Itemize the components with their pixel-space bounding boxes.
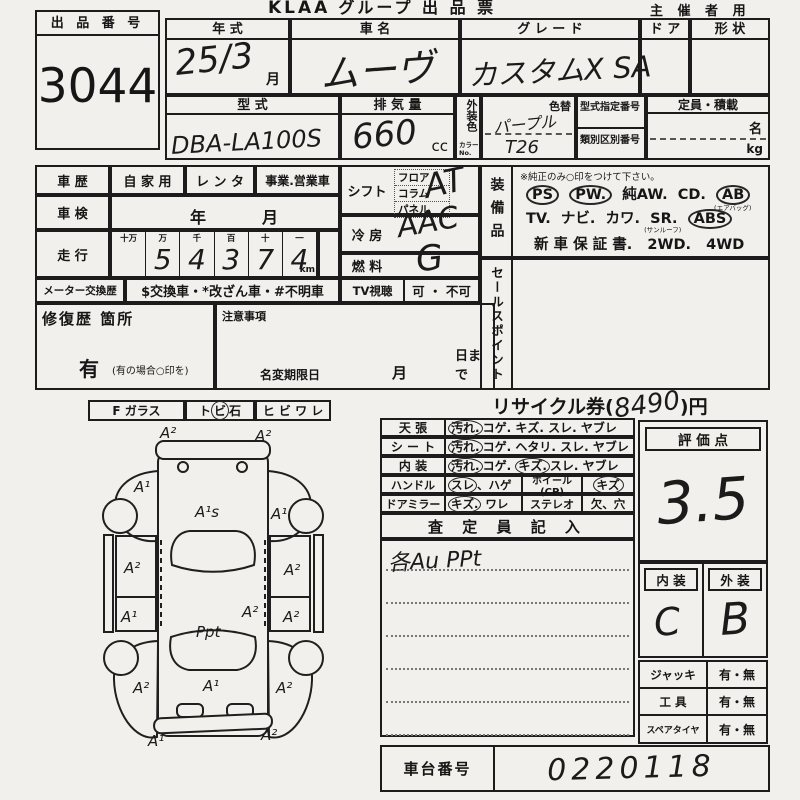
grade-value: カスタムX SA (467, 43, 652, 95)
equipment-label: 装備品 (487, 177, 507, 246)
shape-cell: 形 状 (690, 18, 770, 95)
sheet-title-text: グループ 出 品 票 (338, 0, 496, 17)
recycle-suffix: )円 (680, 396, 708, 418)
tv-label: TV視聴 (342, 280, 405, 301)
headliner-label: 天 張 (382, 420, 446, 435)
meter-history-label: メーター交換歴 (35, 278, 125, 303)
spare-tire-label: スペアタイヤ (640, 716, 708, 742)
left-sill-strip (104, 535, 113, 632)
inspector-header: 査 定 員 記 入 (380, 513, 635, 539)
shift-value: AT (420, 159, 468, 206)
equip-tv: TV. (526, 211, 551, 227)
grade-cell: グ レ ー ド カスタムX SA (460, 18, 640, 95)
car-name-label: 車 名 (292, 20, 458, 40)
organizer-use-label: 主 催 者 用 (650, 0, 751, 19)
rear-bumper (154, 713, 273, 733)
grade-box: 内 装 外 装 C B (638, 562, 768, 658)
meter-history-options: $交換車・*改ざん車・#不明車 (125, 278, 340, 303)
capacity-cell: 定員・積載 名 kg (646, 95, 770, 160)
auction-sheet: KLAA グループ 出 品 票 主 催 者 用 出 品 番 号 3044 年 式… (0, 0, 800, 800)
exterior-color-label: 外装色 (463, 99, 479, 132)
interior-grade-label: 内 装 (644, 568, 698, 591)
mileage-spare-cell (318, 230, 340, 278)
score-value: 3.5 (637, 447, 770, 556)
equip-sr: SR.(サンルーフ) (650, 211, 677, 227)
door-mirror-options: キズ. ワレ (446, 496, 523, 511)
damage-annotation: A¹s (194, 503, 219, 521)
damage-annotation: A¹ (120, 608, 137, 626)
damage-annotation: A¹ (202, 677, 219, 695)
lot-number-label: 出 品 番 号 (37, 12, 158, 36)
jack-value: 有・無 (708, 662, 766, 687)
sales-point-label: セールスポイント (487, 266, 506, 382)
rear-left-wheel (104, 641, 138, 675)
year-cell: 年 式 25/3 月 (165, 18, 290, 95)
damage-annotation: A² (132, 679, 149, 697)
fuel-value: G (414, 238, 445, 281)
tv-cell: TV視聴 可 ・ 不可 (340, 278, 480, 303)
mileage-label: 走 行 (35, 230, 110, 278)
condition-interior-row: 内 装 汚れ.コゲ. キズ.スレ. ヤブレ (380, 456, 635, 475)
damage-annotation: A² (282, 608, 299, 626)
equip-pw: PW. (569, 185, 612, 205)
year-value: 25/3 (173, 36, 255, 84)
ac-cell: 冷 房 AAC (340, 215, 480, 253)
right-mirror-dot (237, 462, 247, 472)
fuel-cell: 燃 料 G (340, 253, 480, 278)
interior-trim-label: 内 装 (382, 458, 446, 473)
history-label: 車 歴 (35, 165, 110, 195)
displacement-cell: 排 気 量 660 cc (340, 95, 455, 160)
name-change-label: 名変期限日 (260, 366, 320, 383)
jack-label: ジャッキ (640, 662, 708, 687)
displacement-value: 660 (350, 112, 418, 158)
front-left-wheel (103, 499, 137, 533)
door-label: ド ア (642, 20, 688, 40)
condition-mirror-row: ドアミラー キズ. ワレ ステレオ 欠、穴 (380, 494, 635, 513)
condition-headliner-row: 天 張 汚れ.コゲ. キズ. スレ. ヤブレ (380, 418, 635, 437)
ruled-line (386, 734, 629, 736)
digit-value: 3 (215, 244, 248, 274)
color-code-value: T26 (505, 137, 539, 158)
repair-yes-note: (有の場合○印を) (112, 362, 189, 377)
equip-cd: CD. (678, 187, 706, 203)
color-value-cell: 色替 パープル T26 (481, 95, 576, 160)
mileage-digits: 十万 万 5 千 4 百 3 十 7 一 4 km (110, 230, 318, 278)
score-box: 評 価 点 3.5 (638, 420, 768, 562)
capacity-weight-unit: kg (746, 142, 763, 156)
exterior-grade-value: B (718, 593, 752, 646)
history-business: 事業.営業車 (255, 165, 340, 195)
caution-label: 注意事項 (217, 305, 493, 324)
exterior-color-side-cell: 外装色 カラーNo. (455, 95, 481, 160)
shift-label: シフト (342, 167, 392, 213)
grade-box-divider (702, 564, 704, 656)
repair-yes-label: 有 (79, 353, 99, 382)
car-name-value: ムーヴ (318, 36, 436, 99)
front-right-wheel (289, 499, 323, 533)
condition-handle-row: ハンドル スレ、ハゲ ホイール(CP) キズ (380, 475, 635, 494)
chassis-number-label: 車台番号 (382, 747, 495, 790)
windshield (171, 531, 255, 572)
digit-value: 7 (249, 244, 282, 274)
digit-value: 4 (180, 244, 213, 274)
handle-options: スレ、ハゲ (446, 477, 523, 492)
model-code-label: 型 式 (167, 97, 338, 115)
equip-navi: ナビ. (561, 211, 596, 227)
grade-label: グ レ ー ド (462, 20, 638, 40)
lot-number-value: 3044 (37, 36, 158, 136)
seat-label: シ ー ト (382, 439, 446, 454)
equipment-box: 装備品 ※純正のみ○印をつけて下さい。 PS PW. 純AW. CD. AB(エ… (480, 165, 770, 258)
color-cell-divider (485, 133, 572, 135)
equipment-row-1: PS PW. 純AW. CD. AB(エアバッグ) (526, 183, 750, 205)
digit-header: 十万 (112, 232, 145, 244)
model-code-cell: 型 式 DBA-LA100S (165, 95, 340, 160)
auction-logo: KLAA (268, 0, 330, 18)
inspection-month-unit: 月 (262, 204, 278, 228)
year-month-unit: 月 (266, 69, 280, 89)
year-label: 年 式 (167, 20, 288, 40)
inspection-year-unit: 年 (190, 204, 206, 228)
equip-warranty: 新 車 保 証 書. (534, 237, 632, 253)
digit-value (112, 244, 145, 274)
damage-annotation: A¹ (147, 732, 164, 750)
equip-2wd: 2WD. (647, 237, 691, 253)
caution-box: 注意事項 名変期限日 月 日まで (215, 303, 495, 390)
car-diagram: A²A²A¹A¹sA¹A²A²A¹A²A²PptA²A¹A²A¹A² (75, 418, 375, 800)
door-mirror-label: ドアミラー (382, 496, 446, 511)
damage-annotation: Ppt (196, 623, 222, 641)
equip-aw: 純AW. (622, 187, 667, 203)
damage-annotation: A² (283, 561, 300, 579)
equipment-side-label-cell: 装備品 (482, 167, 513, 256)
ruled-line (386, 602, 629, 604)
handle-label: ハンドル (382, 477, 446, 492)
history-rental: レ ン タ (185, 165, 255, 195)
rear-right-wheel (289, 641, 323, 675)
rear-lamp-left (177, 704, 203, 717)
stereo-label: ステレオ (523, 496, 583, 511)
car-name-cell: 車 名 ムーヴ (290, 18, 460, 95)
wheel-cp-label: ホイール(CP) (523, 477, 583, 492)
sales-point-side-cell: セールスポイント (482, 260, 513, 388)
displacement-unit: cc (432, 137, 449, 155)
ac-label: 冷 房 (342, 217, 392, 251)
damage-annotation: A² (123, 559, 140, 577)
sales-point-box: セールスポイント (480, 258, 770, 390)
tools-label: 工 具 (640, 689, 708, 714)
history-private: 自 家 用 (110, 165, 185, 195)
equipment-row-3: 新 車 保 証 書. 2WD. 4WD (534, 233, 744, 254)
damage-annotation: A² (241, 603, 258, 621)
inspector-notes-box: 各Au PPt (380, 539, 635, 737)
equip-abs: ABS (688, 209, 733, 229)
fuel-label: 燃 料 (342, 255, 392, 276)
equip-ps: PS (526, 185, 559, 205)
chassis-number-box: 車台番号 0220118 (380, 745, 770, 792)
exterior-grade-label: 外 装 (708, 568, 762, 591)
stereo-value: 欠、穴 (583, 496, 633, 511)
damage-annotation: A² (260, 726, 277, 744)
equip-4wd: 4WD (706, 237, 744, 253)
spare-tire-value: 有・無 (708, 716, 766, 742)
shape-label: 形 状 (692, 20, 768, 40)
left-mirror-dot (178, 462, 188, 472)
name-change-month: 月 (392, 362, 407, 383)
model-code-value: DBA-LA100S (170, 124, 322, 160)
recycle-label: リサイクル券( (492, 396, 614, 418)
damage-annotation: A¹ (133, 478, 150, 496)
chassis-number-value: 0220118 (494, 743, 768, 793)
recycle-ticket-line: リサイクル券(8490)円 (492, 390, 708, 420)
lot-number-box: 出 品 番 号 3044 (35, 10, 160, 150)
ruled-line (386, 569, 629, 571)
ruled-line (386, 701, 629, 703)
repair-history-box: 修復歴 箇所 有 (有の場合○印を) (35, 303, 215, 390)
digit-value: 5 (146, 244, 179, 274)
equipment-note: ※純正のみ○印をつけて下さい。 (520, 169, 660, 183)
headliner-options: 汚れ.コゲ. キズ. スレ. ヤブレ (446, 420, 633, 435)
type-designation-label: 型式指定番号 (578, 97, 644, 113)
damage-annotation: A¹ (270, 505, 287, 523)
seat-options: 汚れ.コゲ. ヘタリ. スレ. ヤブレ (446, 439, 633, 454)
equip-kawa: カワ. (606, 211, 641, 227)
capacity-label: 定員・積載 (648, 97, 768, 114)
accessories-box: ジャッキ 有・無 工 具 有・無 スペアタイヤ 有・無 (638, 660, 768, 744)
damage-annotation: A² (254, 427, 271, 445)
condition-seat-row: シ ー ト 汚れ.コゲ. ヘタリ. スレ. ヤブレ (380, 437, 635, 456)
inspection-label: 車 検 (35, 195, 110, 230)
repair-history-label: 修復歴 箇所 (37, 305, 213, 329)
sheet-title: KLAA グループ 出 品 票 (268, 0, 496, 18)
equipment-row-2: TV. ナビ. カワ. SR.(サンルーフ) ABS (526, 207, 732, 229)
inspector-note-value: 各Au PPt (387, 541, 482, 578)
damage-annotation: A² (275, 679, 292, 697)
tools-value: 有・無 (708, 689, 766, 714)
damage-annotation: A² (159, 424, 176, 442)
capacity-persons-unit: 名 (749, 118, 762, 137)
displacement-label: 排 気 量 (342, 97, 453, 115)
mileage-unit: km (300, 265, 315, 275)
interior-grade-value: C (652, 599, 682, 645)
capacity-divider (650, 138, 766, 140)
inspection-value-cell: 年 月 (110, 195, 340, 230)
color-no-label: カラーNo. (459, 139, 479, 157)
classification-number-label: 類別区別番号 (578, 129, 644, 146)
wheel-cp-value: キズ (583, 477, 633, 492)
front-bumper (156, 441, 270, 459)
equip-ab: AB(エアバッグ) (716, 185, 750, 205)
ruled-line (386, 668, 629, 670)
type-designation-cell: 型式指定番号 類別区別番号 (576, 95, 646, 160)
tv-options: 可 ・ 不可 (405, 280, 478, 301)
ruled-line (386, 635, 629, 637)
right-sill-strip (314, 535, 323, 632)
